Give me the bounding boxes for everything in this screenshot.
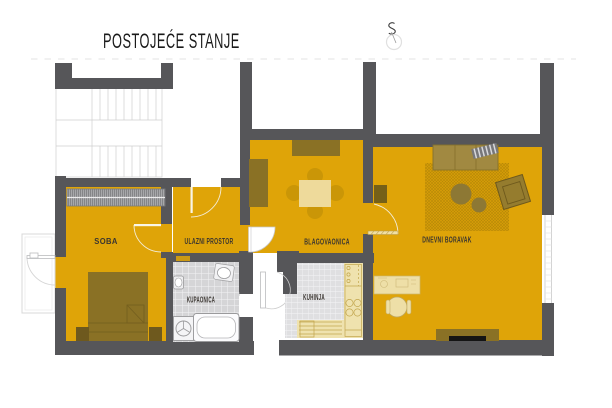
svg-text:DNEVNI BORAVAK: DNEVNI BORAVAK xyxy=(422,237,471,245)
svg-text:POSTOJEĆE STANJE: POSTOJEĆE STANJE xyxy=(103,29,240,53)
svg-text:KUHINJA: KUHINJA xyxy=(303,294,325,303)
svg-text:BLAGOVAONICA: BLAGOVAONICA xyxy=(304,239,349,247)
svg-text:ULAZNI PROSTOR: ULAZNI PROSTOR xyxy=(185,238,234,246)
svg-text:SOBA: SOBA xyxy=(94,237,117,246)
svg-text:KUPAONICA: KUPAONICA xyxy=(187,296,215,305)
